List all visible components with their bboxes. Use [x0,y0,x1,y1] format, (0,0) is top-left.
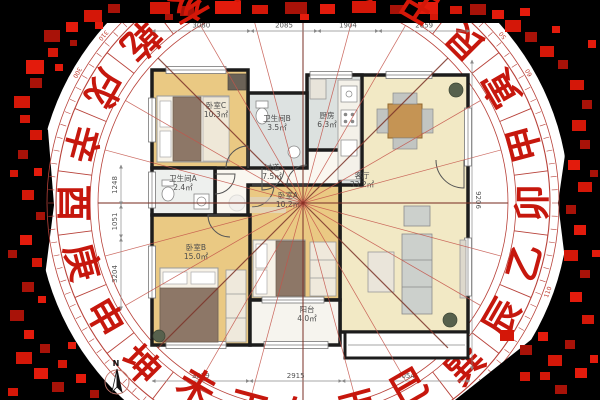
glitch-block [40,344,50,353]
glitch-block [500,330,514,341]
glitch-block [548,355,562,366]
room-area: 6.3㎡ [317,120,337,129]
room-area: 2.4㎡ [173,183,193,192]
chair-icon [422,109,433,133]
glitch-block [95,22,103,29]
glitch-block [34,368,48,379]
glitch-block [520,372,530,381]
sink-icon [341,86,357,102]
glitch-block [582,315,594,324]
glitch-block [525,32,537,42]
glitch-block [16,352,32,364]
fridge-icon [310,79,326,99]
glitch-block [320,4,335,14]
washbasin-icon [288,146,300,158]
burner-icon [344,120,348,124]
glitch-block [14,96,30,108]
dim-label-left: 1051 [111,213,119,231]
glitch-block [578,182,592,192]
room-name: 厨房 [320,110,335,120]
glitch-block [165,14,173,20]
glitch-block [520,8,530,16]
room-name: 卫生间A [169,173,197,183]
glitch-block [252,5,268,14]
glitch-block [564,250,578,261]
glitch-block [590,170,598,177]
glitch-block [84,10,102,22]
glitch-block [20,115,30,123]
glitch-block [558,60,568,69]
glitch-block [44,30,60,42]
glitch-block [300,14,309,20]
pillow-icon [163,272,187,284]
dim-label-left: 3204 [111,265,119,283]
armchair-icon [404,206,430,226]
dim-label-right: 9206 [474,191,482,209]
glitch-block [570,292,582,302]
sofa-icon [402,234,432,314]
glitch-block [285,2,307,14]
glitch-block [8,250,17,258]
fengshui-floorplan-scene: 乾戌辛酉庚申坤艮寅甲卯乙辰巽300310330305060110130 [0,0,600,400]
glitch-block [575,368,587,378]
glitch-block [30,130,42,140]
pillow-icon [160,101,171,127]
glitch-block [492,10,504,19]
glitch-block [55,64,63,71]
wardrobe-icon [310,242,336,296]
glitch-block [76,374,86,383]
glitch-block [552,26,560,33]
pillow-icon [191,272,215,284]
glitch-block [10,310,24,321]
glitch-block [48,48,58,57]
glitch-block [505,20,521,32]
chair-icon [393,93,417,104]
toilet-icon [162,187,174,201]
glitch-block [555,385,567,394]
chair-icon [377,109,388,133]
plant-icon [153,330,165,342]
glitch-block [22,190,34,200]
floor-plan: 客厅33.2㎡厨房6.3㎡过道7.5㎡卫生间B3.5㎡卧室C10.3㎡卫生间A2… [149,67,472,359]
glitch-block [24,330,34,339]
glitch-block [540,372,550,380]
ring-char-you: 酉 [52,185,96,222]
glitch-block [580,140,590,149]
glitch-block [8,388,18,396]
glitch-block [26,60,44,74]
washer-icon [194,194,209,209]
blanket-icon [173,97,201,161]
glitch-block [572,120,586,131]
room-area: 10.3㎡ [204,110,229,119]
glitch-block [574,225,586,235]
room-name: 卫生间B [263,113,291,123]
glitch-block [588,40,596,48]
glitch-block [520,345,532,355]
room-label-bedroom_b: 卧室B15.0㎡ [184,242,209,261]
glitch-block [592,250,600,257]
dim-label-left: 1248 [111,176,119,194]
room-area: 4.0㎡ [297,314,317,323]
glitch-block [570,80,584,90]
glitch-block [538,332,548,341]
room-name: 阳台 [300,304,315,314]
glitch-block [580,270,590,278]
counter-top-icon [341,140,357,156]
cabinet-icon [228,74,246,90]
glitch-block [90,390,99,398]
glitch-block [70,40,77,46]
glitch-block [450,6,462,14]
plant-icon [449,83,463,97]
plant-icon [443,313,457,327]
glitch-block [566,205,576,214]
pillow-icon [160,131,171,157]
room-label-balcony: 阳台4.0㎡ [297,304,317,323]
room-balcony [250,300,340,345]
glitch-block [582,100,592,109]
glitch-block [22,282,34,292]
glitch-block [10,170,18,177]
glitch-block [470,4,486,15]
glitch-block [66,22,78,32]
glitch-block [590,355,598,363]
toilet-tank-icon [256,101,268,108]
ring-char-mao: 卯 [510,185,554,222]
dim-label-bottom: 2915 [287,372,305,380]
edge-char-bottom: 午 [285,393,322,400]
room-name: 卧室B [186,242,206,252]
compass-center-dot [301,201,304,204]
glitch-block [30,78,42,88]
burner-icon [351,120,355,124]
glitch-block [565,340,575,349]
glitch-block [36,212,45,220]
glitch-block [68,342,76,349]
room-area: 3.5㎡ [267,123,287,132]
glitch-block [38,296,46,303]
glitch-block [20,235,32,245]
glitch-block [108,4,120,13]
north-label: N [113,359,120,368]
glitch-block [32,258,42,267]
burner-icon [344,113,348,117]
dining-table-icon [388,104,422,138]
glitch-block [52,382,64,392]
screenshot-root: 乾戌辛酉庚申坤艮寅甲卯乙辰巽300310330305060110130 [0,0,600,400]
room-label-bath_b: 卫生间B3.5㎡ [263,113,291,132]
glitch-block [540,46,554,57]
glitch-block [18,150,28,159]
glitch-block [568,160,580,170]
glitch-block [58,360,67,368]
tv-cabinet-icon [460,240,466,298]
glitch-block [34,168,42,176]
